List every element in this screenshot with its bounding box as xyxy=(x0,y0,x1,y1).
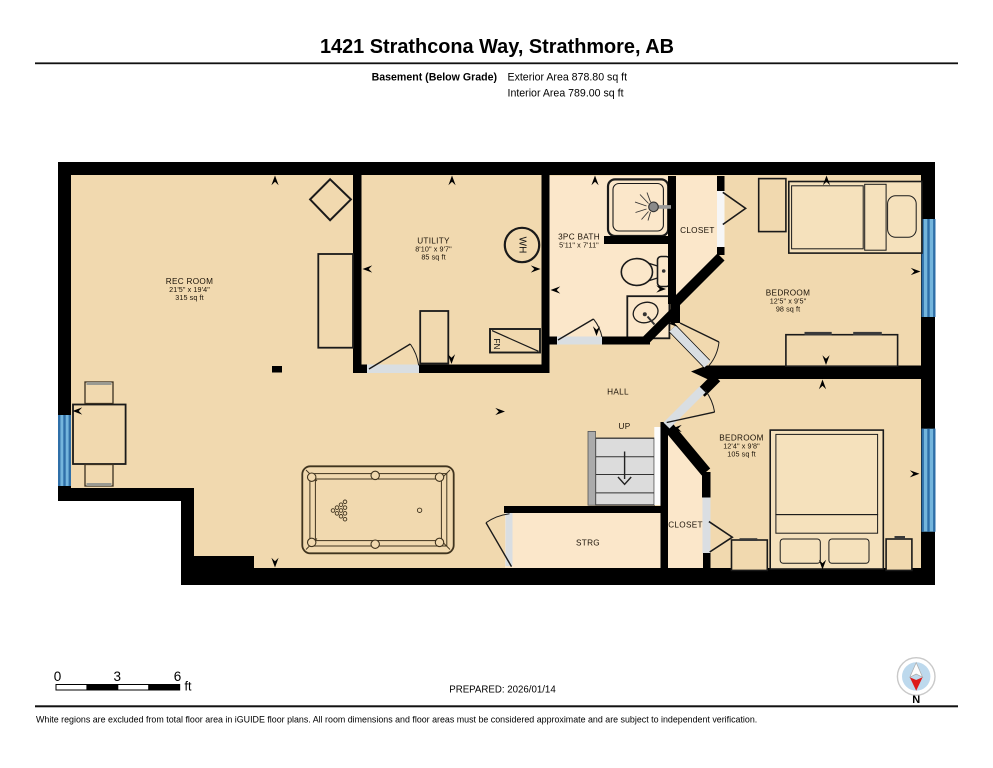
svg-text:0: 0 xyxy=(54,669,62,684)
svg-text:85 sq ft: 85 sq ft xyxy=(421,253,445,262)
svg-text:UP: UP xyxy=(619,422,631,431)
svg-text:Interior Area 789.00 sq ft: Interior Area 789.00 sq ft xyxy=(508,88,624,100)
svg-text:98 sq ft: 98 sq ft xyxy=(776,305,800,314)
svg-text:CLOSET: CLOSET xyxy=(680,226,715,235)
svg-text:CLOSET: CLOSET xyxy=(668,521,703,530)
svg-text:HALL: HALL xyxy=(607,388,629,397)
svg-text:Basement (Below Grade): Basement (Below Grade) xyxy=(372,72,497,84)
svg-text:Exterior Area 878.80 sq ft: Exterior Area 878.80 sq ft xyxy=(508,72,628,84)
svg-text:STRG: STRG xyxy=(576,539,600,548)
svg-text:White regions are excluded fro: White regions are excluded from total fl… xyxy=(36,715,757,725)
svg-text:PREPARED: 2026/01/14: PREPARED: 2026/01/14 xyxy=(449,685,556,696)
svg-text:6: 6 xyxy=(174,669,182,684)
svg-text:WH: WH xyxy=(517,237,528,254)
svg-text:ft: ft xyxy=(185,680,192,694)
svg-text:N: N xyxy=(912,694,920,706)
svg-text:105 sq ft: 105 sq ft xyxy=(727,450,755,459)
svg-text:315 sq ft: 315 sq ft xyxy=(175,293,203,302)
svg-text:3: 3 xyxy=(114,669,122,684)
svg-text:1421 Strathcona Way, Strathmor: 1421 Strathcona Way, Strathmore, AB xyxy=(320,36,674,58)
svg-text:FN: FN xyxy=(492,339,501,350)
svg-text:5'11" x 7'11": 5'11" x 7'11" xyxy=(559,241,599,250)
